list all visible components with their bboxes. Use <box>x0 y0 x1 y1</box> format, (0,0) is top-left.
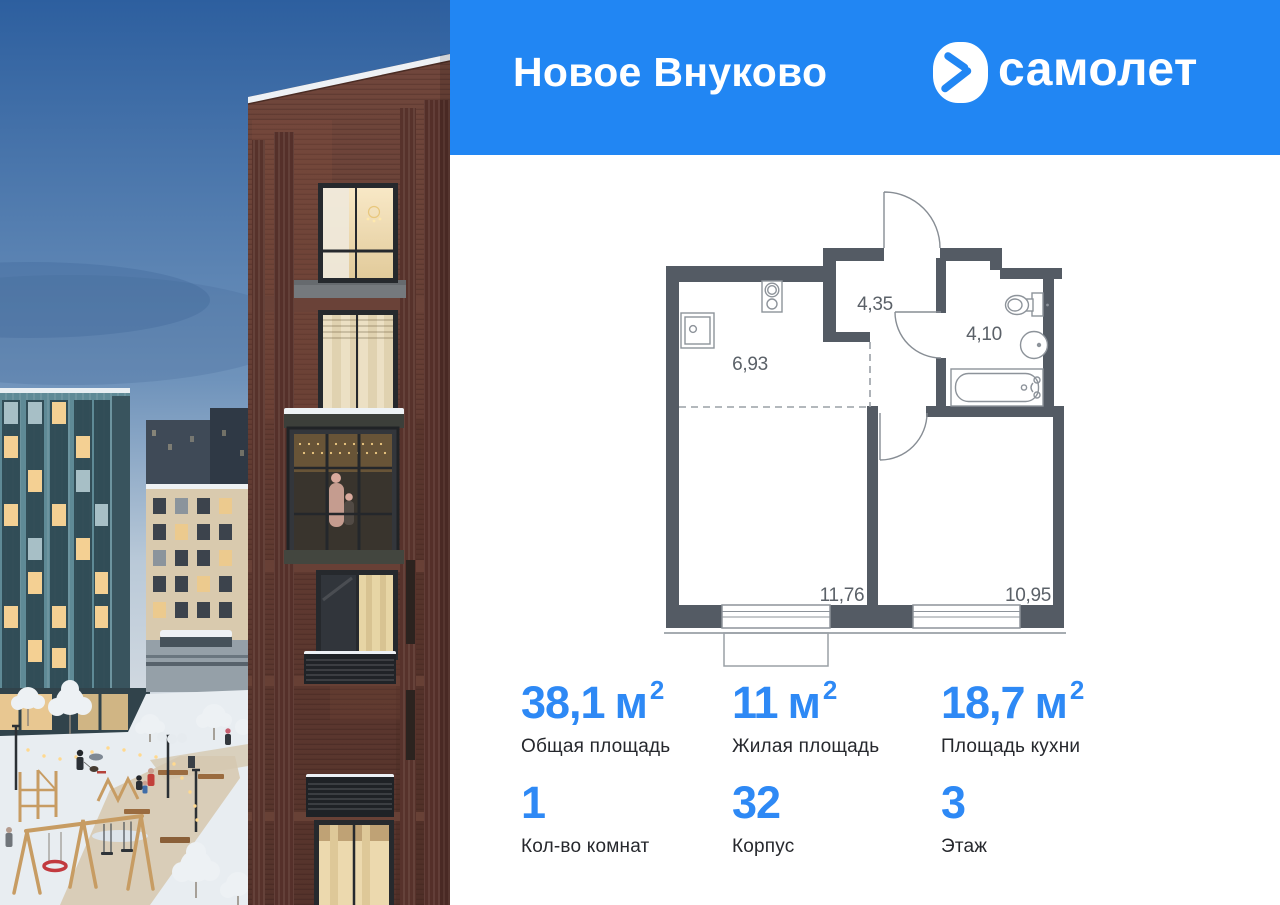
beige-building <box>146 484 248 692</box>
stat-building-number: 32 Корпус <box>732 780 947 858</box>
tower-window-bottom <box>314 820 394 905</box>
floor-number-value: 3 <box>941 780 1156 825</box>
background-buildings <box>146 408 260 495</box>
brand-logo: самолет <box>932 41 1198 104</box>
samolet-logo-icon <box>932 41 989 104</box>
building-number-value: 32 <box>732 780 947 825</box>
project-title: Новое Вну­ково <box>513 52 827 93</box>
tower-window-upper <box>318 183 398 283</box>
hedge <box>160 630 232 647</box>
stat-total-area: 38,1м2 Общая площадь <box>521 677 736 758</box>
listing-card: Новое Вну­ково самолет <box>0 0 1280 905</box>
kitchen-area-value: 18,7м2 <box>941 677 1156 725</box>
bathroom-area-label: 4,10 <box>966 324 1002 345</box>
total-area-value: 38,1м2 <box>521 677 736 725</box>
total-area-label: Общая площадь <box>521 736 736 758</box>
bedroom-area-label: 10,95 <box>1005 585 1051 606</box>
tower-window-mid <box>318 310 398 422</box>
child <box>143 781 148 794</box>
kitchen-area-label: Площадь кухни <box>941 736 1156 758</box>
bathtub-icon <box>951 369 1043 406</box>
building-number-label: Корпус <box>732 836 947 858</box>
stat-kitchen-area: 18,7м2 Площадь кухни <box>941 677 1156 758</box>
stove-icon <box>762 281 782 312</box>
floor-number-label: Этаж <box>941 836 1156 858</box>
brick-tower <box>248 54 450 905</box>
bedroom-door <box>880 413 927 460</box>
kitchen-area-label: 6,93 <box>732 354 768 375</box>
floor-plan: 6,93 4,35 4,10 11,76 10,95 <box>640 168 1100 700</box>
header-banner: Новое Вну­ково самолет <box>450 0 1280 155</box>
door-swings <box>880 192 941 460</box>
bathroom-sink-icon <box>1021 332 1048 359</box>
street <box>146 640 248 692</box>
toilet-icon <box>1006 293 1049 316</box>
building-photo <box>0 0 450 905</box>
glazed-balcony <box>284 408 404 564</box>
person-walking <box>225 728 231 745</box>
louver-planter-1 <box>304 651 396 684</box>
room-area-labels: 6,93 4,35 4,10 11,76 10,95 <box>732 294 1051 606</box>
stat-floor-number: 3 Этаж <box>941 780 1156 858</box>
stat-rooms-count: 1 Кол-во комнат <box>521 780 736 858</box>
kitchen-sink-icon <box>681 313 714 348</box>
bathroom-door <box>895 312 941 358</box>
living-area-value: 11м2 <box>732 677 947 725</box>
brand-logo-text: самолет <box>998 46 1198 94</box>
entrance-door <box>884 192 940 248</box>
person-kneeling <box>136 775 143 790</box>
louver-planter-2 <box>306 774 394 817</box>
hallway-area-label: 4,35 <box>857 294 893 315</box>
rooms-count-label: Кол-во комнат <box>521 836 736 858</box>
living-area-label: Жилая площадь <box>732 736 947 758</box>
balcony-outline <box>724 633 828 666</box>
open-plan-dashed-line <box>679 342 870 407</box>
tower-window-lower <box>316 570 398 660</box>
person-left <box>6 827 13 847</box>
person-red-jacket <box>148 768 155 786</box>
stat-living-area: 11м2 Жилая площадь <box>732 677 947 758</box>
living-room-area-label: 11,76 <box>820 585 865 606</box>
rooms-count-value: 1 <box>521 780 736 825</box>
